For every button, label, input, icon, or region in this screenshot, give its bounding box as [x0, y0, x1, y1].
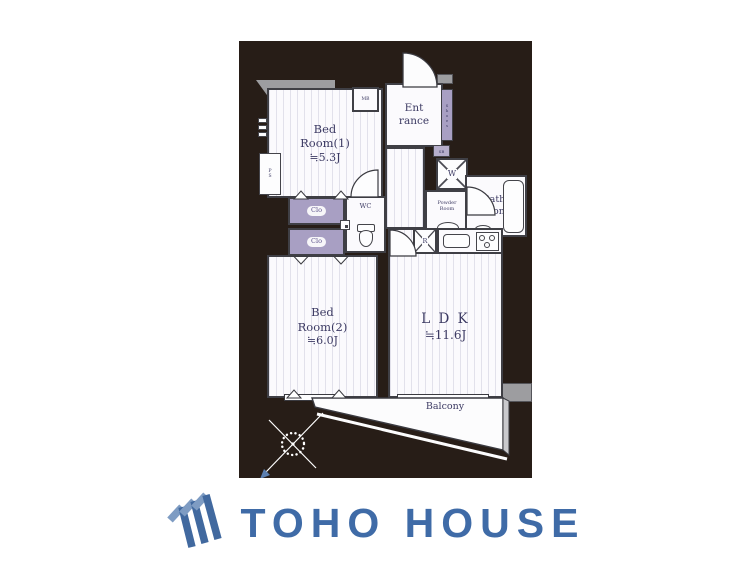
closet-2: Clo [288, 228, 345, 256]
closet-1: Clo [288, 197, 345, 225]
wc-label: WC [347, 202, 384, 210]
pipe-space-box: PS [259, 153, 281, 195]
refrigerator-label: R [422, 237, 429, 245]
window-bedroom2 [284, 394, 342, 401]
brand-row: TOHO HOUSE [0, 490, 750, 556]
meter-box: MB [352, 87, 379, 112]
entrance-label-line1: Ent [399, 102, 429, 115]
window-ldk [397, 394, 489, 401]
room-entrance: Ent rance [385, 83, 443, 147]
shoe-box: SB [433, 145, 450, 157]
washing-machine: W [436, 158, 468, 190]
pipe-space-label: PS [268, 169, 273, 179]
closet-2-label: Clo [307, 237, 326, 247]
toho-house-logo-icon [165, 492, 223, 554]
powder-label-line2: Room [427, 206, 467, 212]
refrigerator: R [413, 228, 437, 254]
meter-box-label: MB [362, 97, 370, 103]
shoes-cabinet-label: Shoes [445, 103, 450, 128]
toilet-bowl-icon [359, 230, 373, 247]
shoes-cabinet: Shoes [441, 89, 453, 141]
structure-pillar-bottom-right [500, 383, 532, 402]
hallway [385, 147, 425, 229]
bedroom2-label-line1: Bed [298, 305, 348, 319]
room-bedroom2: Bed Room(2) ≒6.0J [267, 255, 378, 398]
bathtub-icon [503, 180, 524, 233]
shoe-box-label: SB [439, 149, 445, 154]
latch-box [340, 220, 350, 230]
louver-window [258, 118, 267, 138]
entrance-label-line2: rance [399, 115, 429, 128]
bedroom1-label-line2: Room(1) [300, 136, 350, 150]
balcony-label: Balcony [415, 401, 475, 413]
kitchen-sink-icon [443, 234, 470, 248]
bedroom2-size: ≒6.0J [298, 334, 348, 348]
ldk-label: L D K [421, 311, 469, 328]
floorplan-panel: Bed Room(1) ≒5.3J MB Ent rance Shoes SB … [239, 41, 532, 478]
bedroom2-label-line2: Room(2) [298, 320, 348, 334]
bedroom1-label-line1: Bed [300, 122, 350, 136]
closet-1-label: Clo [307, 206, 326, 216]
washing-machine-label: W [447, 169, 457, 179]
room-wc: WC [345, 196, 386, 253]
ldk-size: ≒11.6J [421, 328, 469, 343]
bedroom1-size: ≒5.3J [300, 151, 350, 165]
brand-name: TOHO HOUSE [241, 500, 586, 547]
kitchen-counter [437, 228, 503, 254]
page: Bed Room(1) ≒5.3J MB Ent rance Shoes SB … [0, 0, 750, 563]
stove-icon [476, 232, 499, 251]
